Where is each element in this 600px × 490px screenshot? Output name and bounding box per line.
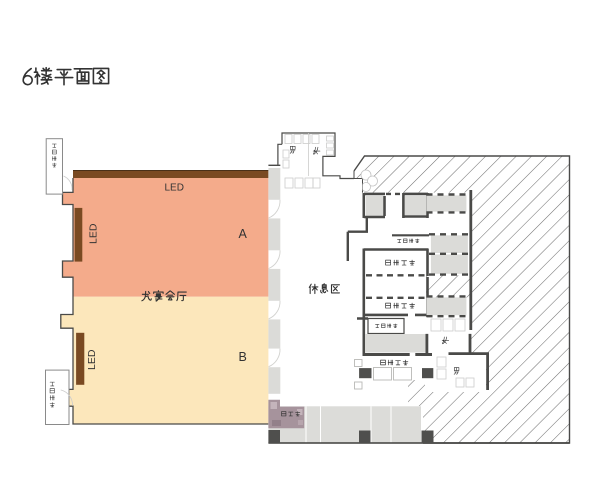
svg-text:LED: LED: [86, 349, 98, 370]
svg-text:LED: LED: [165, 183, 184, 194]
svg-text:B: B: [239, 350, 247, 364]
svg-text:LED: LED: [88, 223, 100, 244]
svg-text:A: A: [239, 227, 248, 241]
